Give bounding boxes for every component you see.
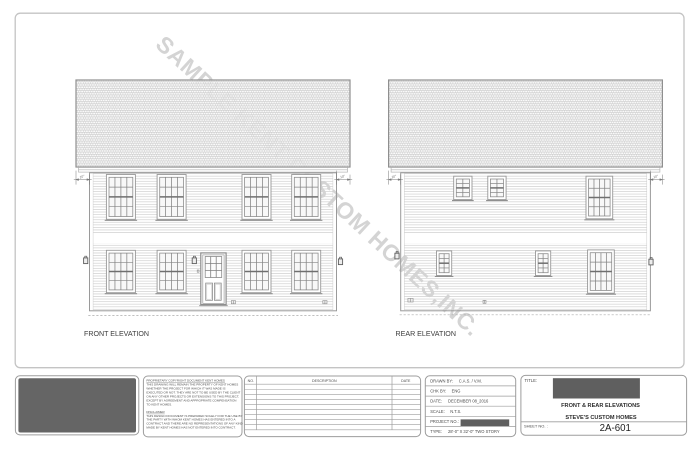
svg-text:SCALE:: SCALE: [430,409,445,414]
svg-text:SHEET NO. :: SHEET NO. : [524,423,548,428]
svg-text:ENG: ENG [452,389,461,394]
svg-text:DESCRIPTION: DESCRIPTION [312,379,337,383]
svg-text:FRONT ELEVATION: FRONT ELEVATION [84,330,149,338]
svg-text:DECEMBER 08_2016: DECEMBER 08_2016 [448,399,489,404]
svg-text:MADE BY KENT HOMES HAS NOT ENT: MADE BY KENT HOMES HAS NOT ENTERED INTO … [146,426,235,430]
svg-text:TYPE:: TYPE: [430,429,442,434]
svg-text:REAR ELEVATION: REAR ELEVATION [396,330,456,338]
svg-text:FRONT & REAR ELEVATIONS: FRONT & REAR ELEVATIONS [561,403,640,409]
svg-text:DATE:: DATE: [430,399,442,404]
svg-text:N.T.S.: N.T.S. [450,409,461,414]
svg-text:CHK BY:: CHK BY: [430,389,446,394]
svg-text:2A-601: 2A-601 [600,423,631,434]
svg-text:28'-0" X 32'-0" TWO STORY: 28'-0" X 32'-0" TWO STORY [448,429,500,434]
svg-text:TITLE:: TITLE: [525,378,538,383]
svg-text:PROJECT NO.:: PROJECT NO.: [430,419,459,424]
svg-text:NO.: NO. [248,379,254,383]
svg-text:DATE: DATE [401,379,411,383]
svg-text:TO KENT HOMES.: TO KENT HOMES. [146,402,172,406]
svg-text:STEVE'S CUSTOM HOMES: STEVE'S CUSTOM HOMES [565,415,636,421]
svg-text:DRAWN BY:: DRAWN BY: [430,378,453,383]
svg-text:C.A.S. / V.M.: C.A.S. / V.M. [459,378,482,383]
